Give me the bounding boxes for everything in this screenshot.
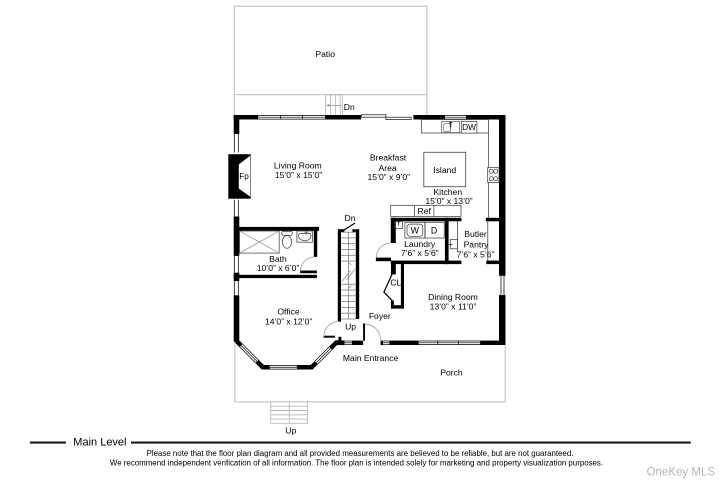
svg-text:Patio: Patio xyxy=(315,49,335,59)
svg-text:CL: CL xyxy=(390,278,401,288)
svg-text:Main Entrance: Main Entrance xyxy=(343,353,399,363)
svg-text:7’6” x 5’6”: 7’6” x 5’6” xyxy=(401,248,439,258)
svg-text:Fp: Fp xyxy=(239,172,249,181)
svg-text:7’6” x 5’6”: 7’6” x 5’6” xyxy=(457,250,495,260)
svg-text:Porch: Porch xyxy=(440,368,463,378)
svg-text:13’0” x 11’0”: 13’0” x 11’0” xyxy=(430,301,477,311)
svg-text:Please note that the floor pla: Please note that the floor plan diagram … xyxy=(147,449,574,458)
svg-text:Dn: Dn xyxy=(345,213,356,223)
svg-text:Foyer: Foyer xyxy=(369,311,391,321)
svg-text:W: W xyxy=(411,225,420,235)
svg-text:DW: DW xyxy=(462,122,476,132)
svg-text:15’0” x 15’0”: 15’0” x 15’0” xyxy=(275,170,322,180)
svg-text:Island: Island xyxy=(433,165,456,175)
svg-text:14’0” x 12’0”: 14’0” x 12’0” xyxy=(265,317,312,327)
svg-text:15’0” x 13’0”: 15’0” x 13’0” xyxy=(425,196,472,206)
svg-text:Pantry: Pantry xyxy=(464,239,490,249)
svg-text:Office: Office xyxy=(277,307,300,317)
svg-text:Breakfast: Breakfast xyxy=(370,153,407,163)
svg-text:We recommend independent verif: We recommend independent verification of… xyxy=(110,458,603,467)
svg-text:Main Level: Main Level xyxy=(73,437,126,449)
svg-text:OneKey MLS: OneKey MLS xyxy=(647,466,716,478)
svg-text:Up: Up xyxy=(285,426,296,436)
svg-text:Up: Up xyxy=(345,322,356,332)
svg-text:Dn: Dn xyxy=(344,102,355,112)
svg-text:10’0” x 6’0”: 10’0” x 6’0” xyxy=(257,263,300,273)
svg-text:Ref: Ref xyxy=(418,206,432,216)
svg-text:Butler: Butler xyxy=(464,229,487,239)
svg-text:15’0” x 9’0”: 15’0” x 9’0” xyxy=(368,172,411,182)
svg-text:D: D xyxy=(431,225,437,235)
